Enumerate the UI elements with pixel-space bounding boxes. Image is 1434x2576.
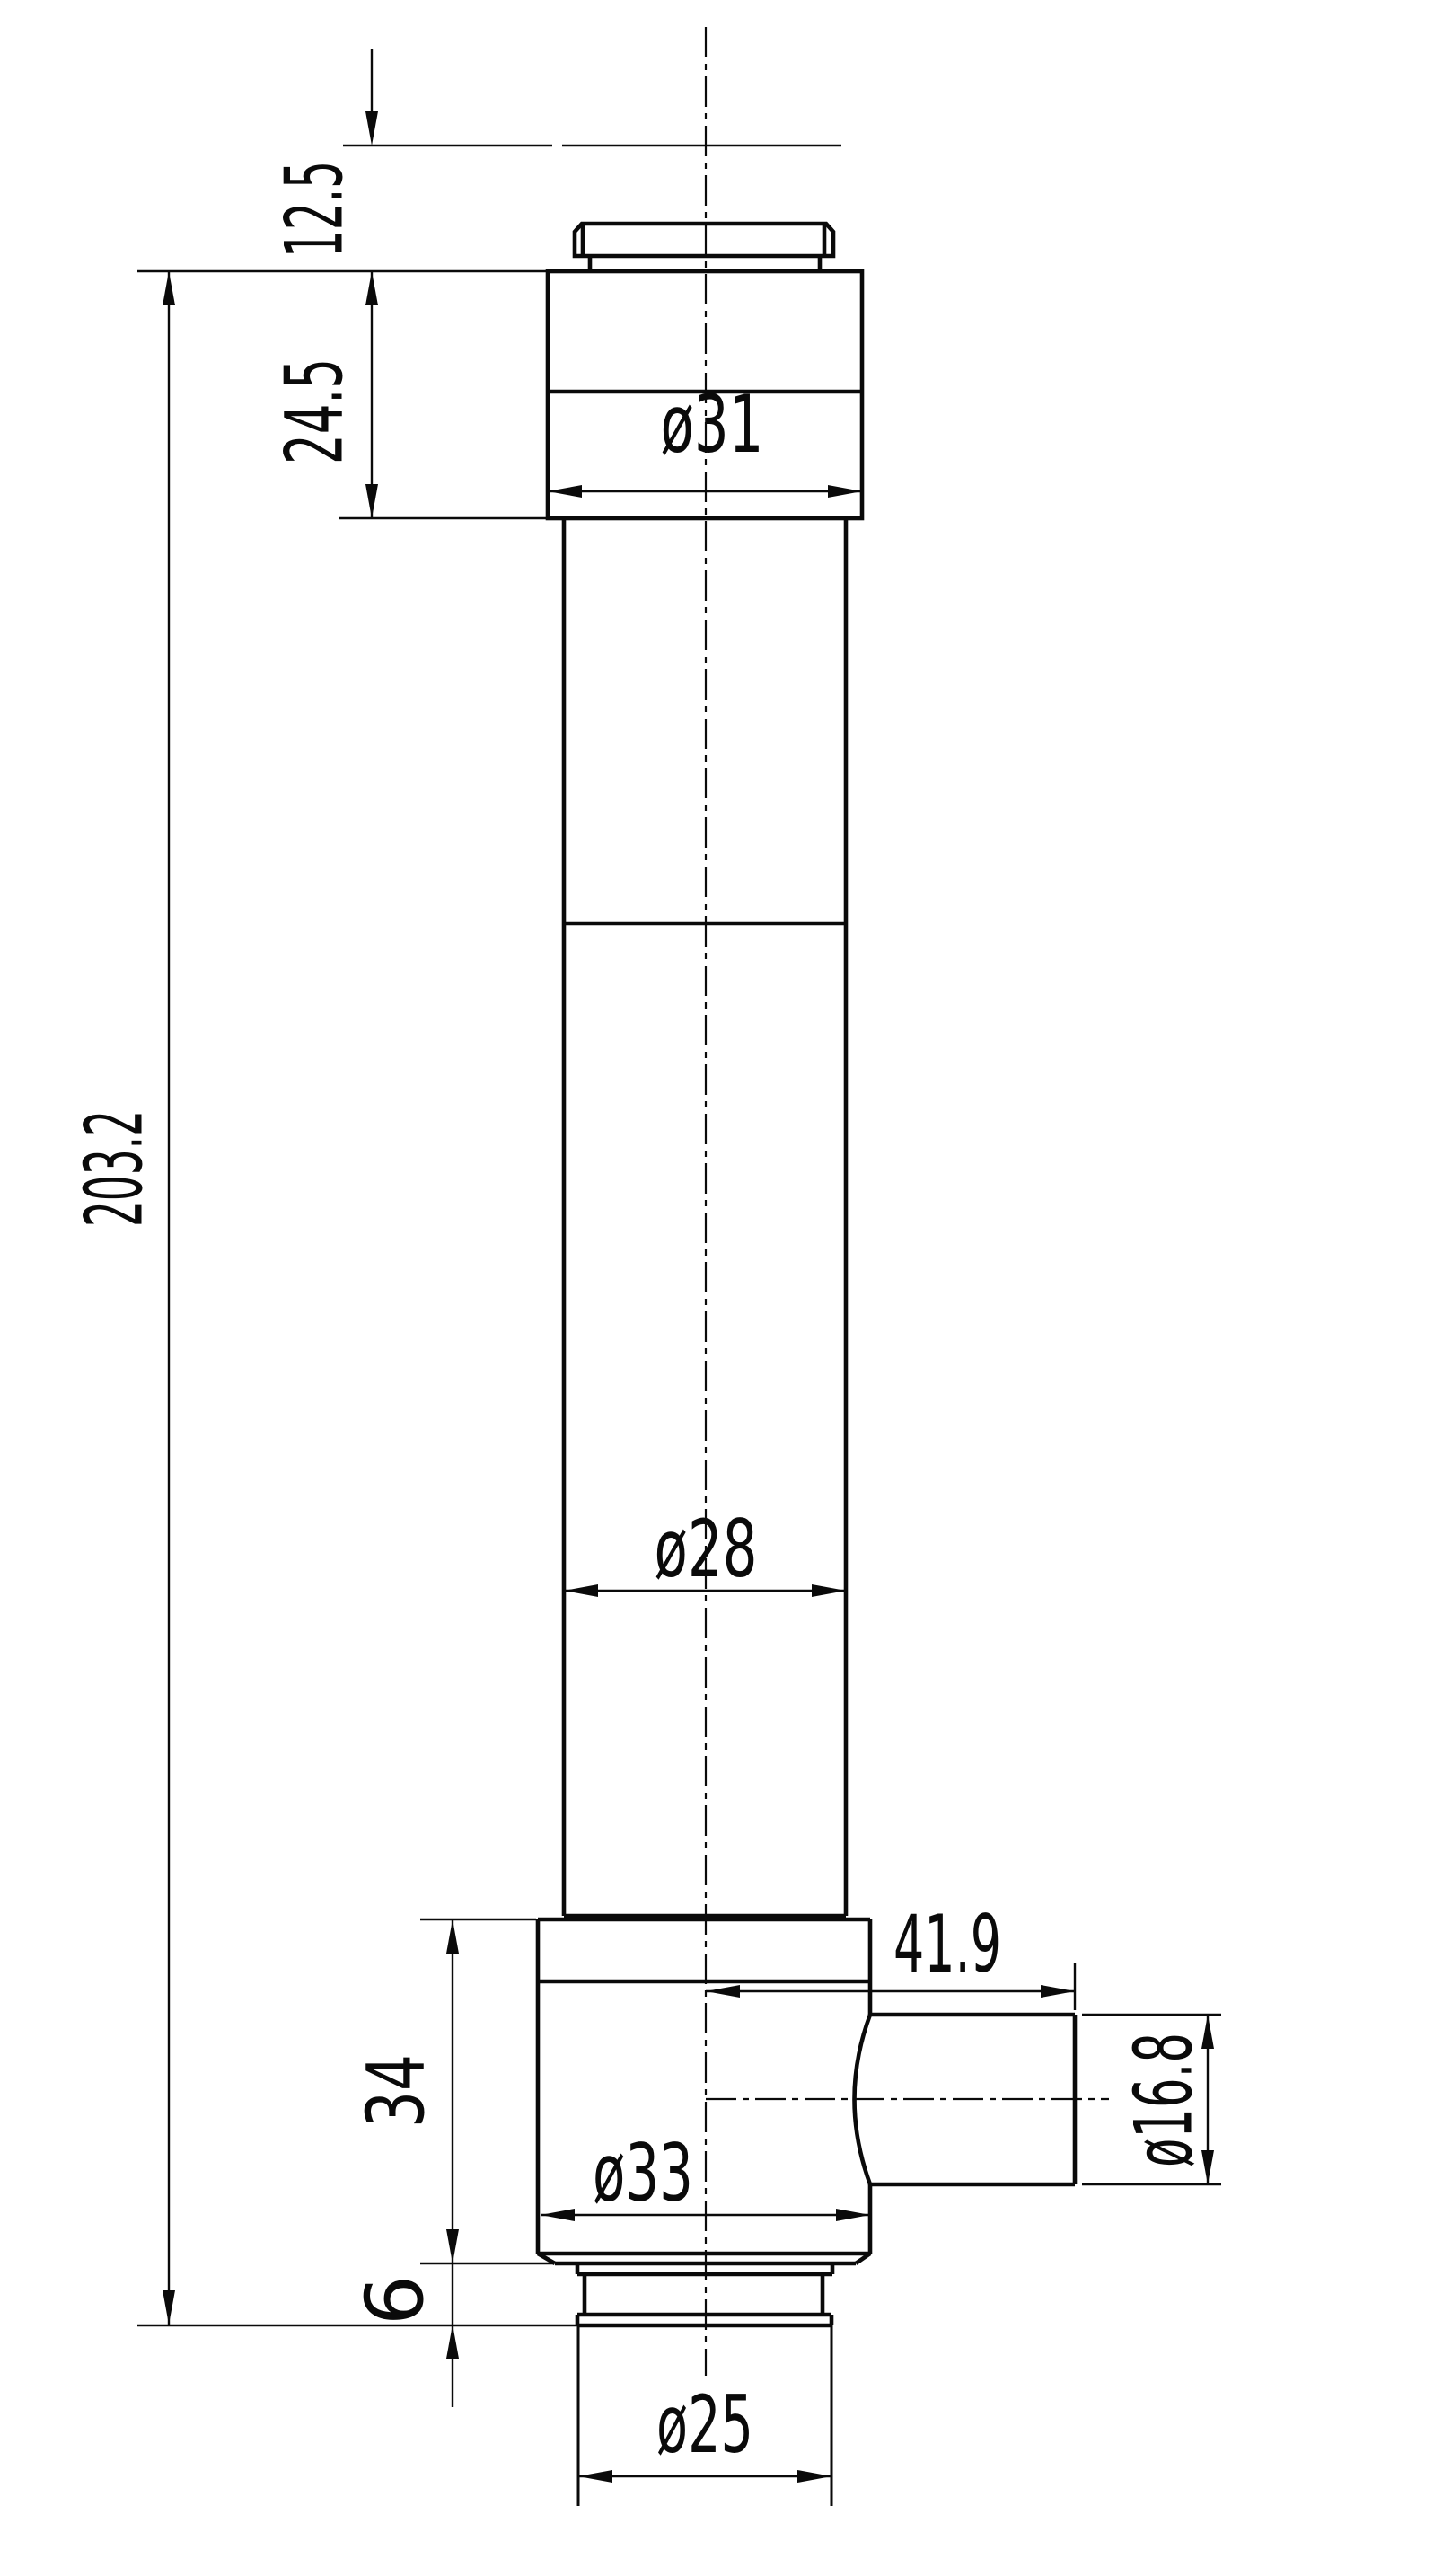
dimension-labels: 12.5 24.5 203.2 ø31 ø28 41.9 ø16.8 34 ø3… <box>68 161 1210 2471</box>
arrow-6-bottom <box>446 2325 459 2359</box>
arrow-34-6-shared <box>446 2229 459 2263</box>
arrow-203-2-top <box>163 271 175 305</box>
arrow-12-5-top <box>365 111 378 146</box>
dim-label-o28: ø28 <box>655 1503 758 1595</box>
arrow-o33-left <box>541 2209 575 2221</box>
dim-label-12-5: 12.5 <box>268 161 361 258</box>
arrow-o31-right <box>828 485 862 498</box>
arrow-24-5-bottom <box>365 484 378 518</box>
technical-drawing-canvas: 12.5 24.5 203.2 ø31 ø28 41.9 ø16.8 34 ø3… <box>0 0 1434 2576</box>
arrow-o33-right <box>836 2209 870 2221</box>
dim-label-o25: ø25 <box>656 2378 753 2471</box>
arrow-o28-right <box>812 1584 846 1597</box>
arrow-34-top <box>446 1919 459 1954</box>
arrow-41-9-left <box>706 1985 740 1998</box>
dim-label-203-2: 203.2 <box>68 1110 161 1227</box>
arrow-o31-left <box>548 485 582 498</box>
dim-label-34: 34 <box>350 2054 443 2128</box>
arrow-203-2-bottom <box>163 2290 175 2325</box>
drawing-sheet: 12.5 24.5 203.2 ø31 ø28 41.9 ø16.8 34 ø3… <box>0 0 1434 2576</box>
arrow-o25-right <box>797 2470 831 2483</box>
dim-label-41-9: 41.9 <box>893 1898 1001 1990</box>
arrow-o28-left <box>564 1584 598 1597</box>
top-cap-outline <box>575 224 833 256</box>
dim-label-o31: ø31 <box>661 378 764 471</box>
part-outline <box>538 224 1075 2325</box>
dim-label-24-5: 24.5 <box>268 358 361 464</box>
arrow-12-5-24-5-shared <box>365 271 378 305</box>
centerlines <box>706 27 1109 2376</box>
arrow-41-9-right <box>1041 1985 1075 1998</box>
dim-label-6: 6 <box>349 2275 442 2325</box>
dim-label-o16-8: ø16.8 <box>1118 2033 1210 2167</box>
dim-label-o33: ø33 <box>593 2127 693 2219</box>
arrow-o25-left <box>578 2470 612 2483</box>
